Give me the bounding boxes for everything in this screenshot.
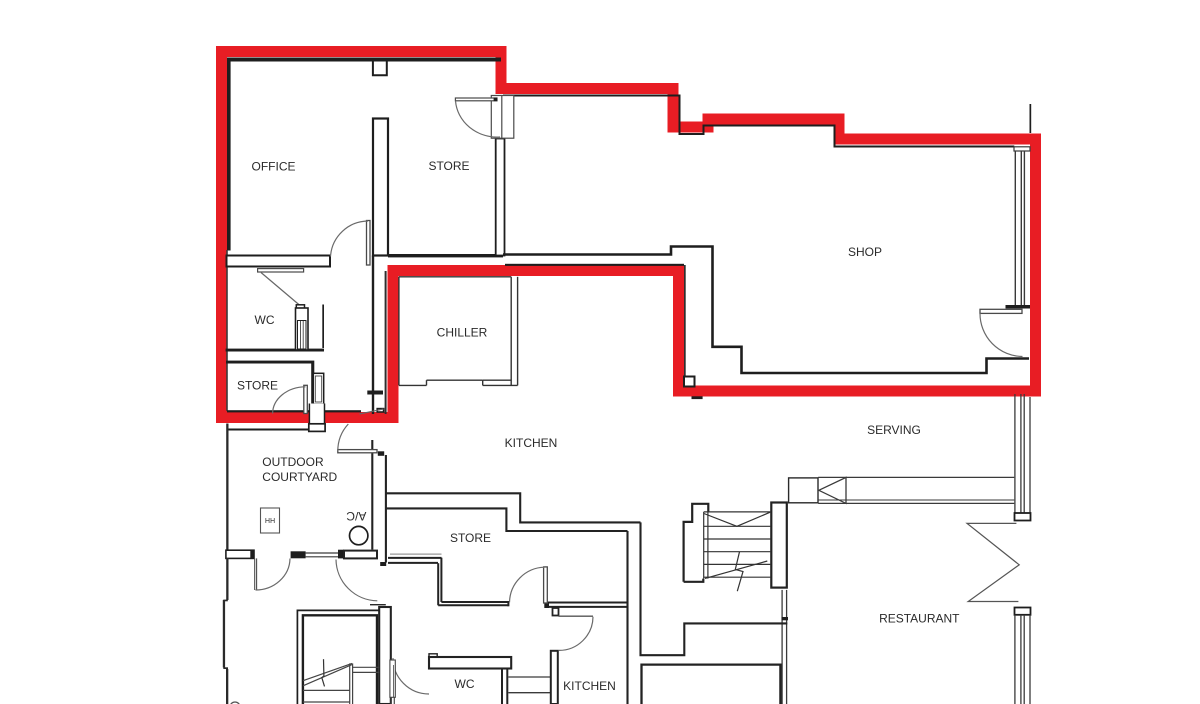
svg-text:STORE: STORE bbox=[237, 379, 278, 393]
svg-text:RESTAURANT: RESTAURANT bbox=[879, 612, 960, 626]
svg-text:COURTYARD: COURTYARD bbox=[262, 470, 337, 484]
svg-text:WC: WC bbox=[255, 313, 275, 327]
svg-text:SERVING: SERVING bbox=[867, 423, 921, 437]
svg-text:OUTDOOR: OUTDOOR bbox=[262, 455, 324, 469]
svg-text:WC: WC bbox=[455, 677, 475, 691]
svg-text:STORE: STORE bbox=[428, 159, 469, 173]
svg-text:STORE: STORE bbox=[450, 531, 491, 545]
svg-text:A/C: A/C bbox=[346, 509, 366, 523]
svg-text:OFFICE: OFFICE bbox=[252, 160, 296, 174]
svg-text:CHILLER: CHILLER bbox=[437, 326, 488, 340]
svg-text:KITCHEN: KITCHEN bbox=[505, 436, 558, 450]
svg-text:KITCHEN: KITCHEN bbox=[563, 679, 616, 693]
svg-text:SHOP: SHOP bbox=[848, 245, 882, 259]
svg-text:HH: HH bbox=[265, 516, 275, 523]
